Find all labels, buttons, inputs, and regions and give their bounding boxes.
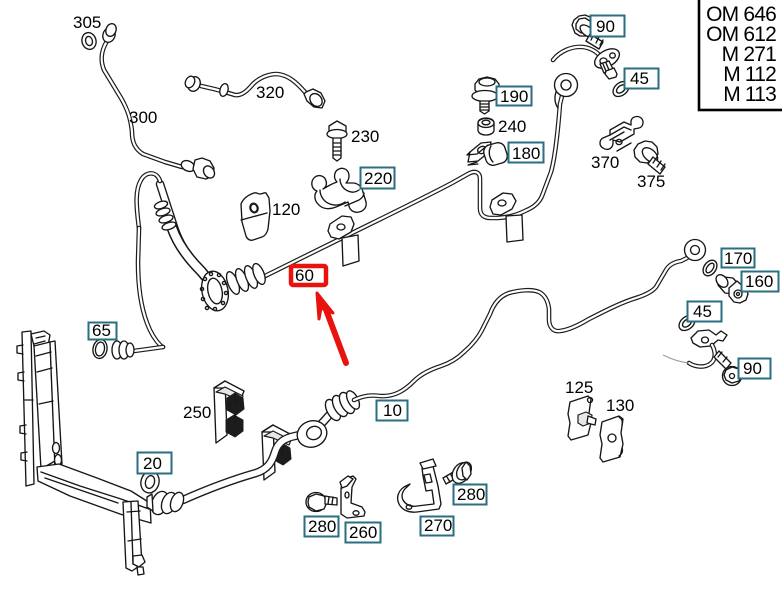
svg-text:320: 320 [256,83,284,102]
svg-text:305: 305 [73,13,101,32]
svg-text:260: 260 [349,523,377,542]
svg-text:160: 160 [745,272,773,291]
svg-text:180: 180 [512,144,540,163]
svg-text:90: 90 [596,17,615,36]
svg-text:270: 270 [424,516,452,535]
svg-text:130: 130 [606,396,634,415]
svg-text:90: 90 [743,359,762,378]
svg-text:20: 20 [143,454,162,473]
svg-text:M 113: M 113 [723,83,776,106]
svg-text:370: 370 [591,153,619,172]
svg-text:65: 65 [92,321,111,340]
svg-text:300: 300 [129,108,157,127]
svg-text:170: 170 [724,249,752,268]
svg-text:280: 280 [457,485,485,504]
svg-text:230: 230 [351,127,379,146]
svg-text:250: 250 [183,403,211,422]
svg-text:375: 375 [637,172,665,191]
svg-text:280: 280 [308,517,336,536]
svg-text:10: 10 [383,401,402,420]
svg-text:125: 125 [565,378,593,397]
svg-text:190: 190 [500,87,528,106]
svg-text:60: 60 [295,266,314,285]
svg-text:45: 45 [630,69,649,88]
svg-text:45: 45 [693,302,712,321]
svg-text:240: 240 [498,117,526,136]
svg-text:220: 220 [364,169,392,188]
svg-text:120: 120 [272,200,300,219]
